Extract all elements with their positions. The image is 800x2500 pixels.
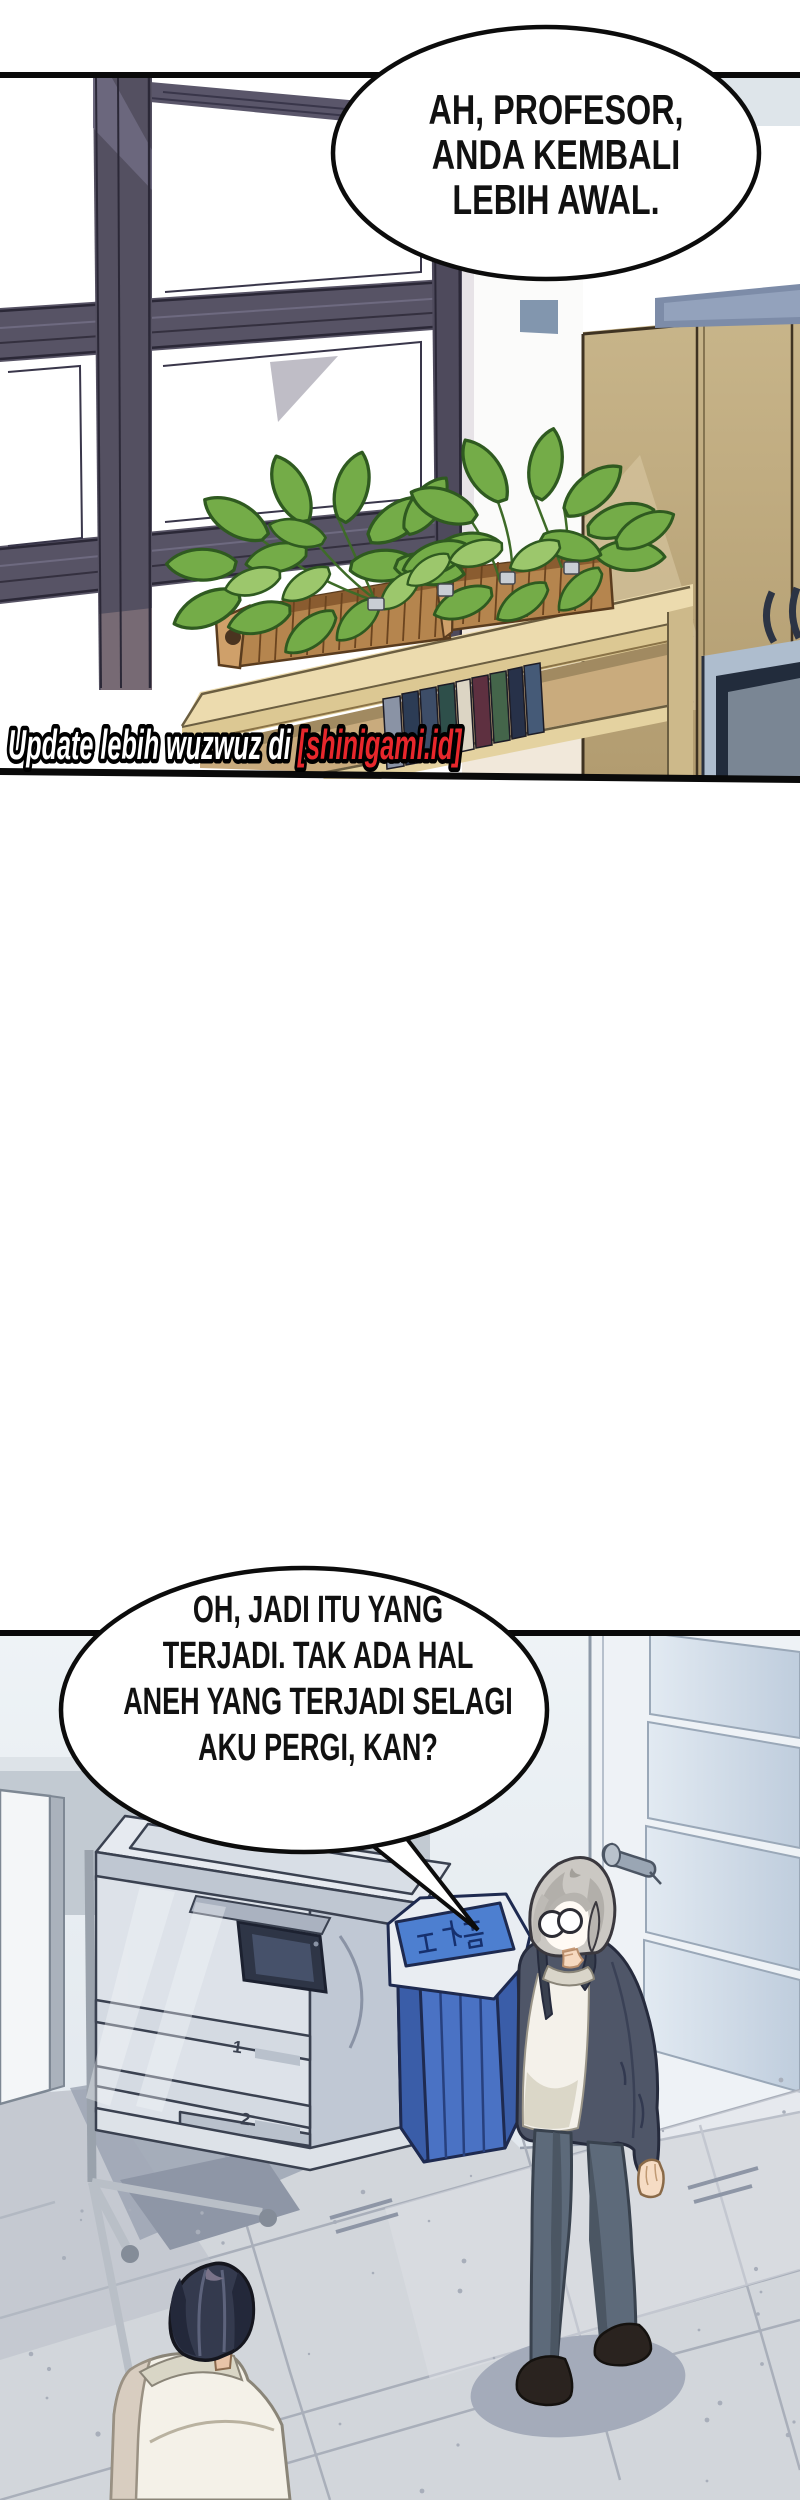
svg-text:OH, JADI ITU YANG: OH, JADI ITU YANG <box>193 1587 443 1630</box>
svg-text:TERJADI. TAK ADA HAL: TERJADI. TAK ADA HAL <box>163 1633 474 1676</box>
svg-text:AKU PERGI, KAN?: AKU PERGI, KAN? <box>198 1725 438 1768</box>
svg-text:LEBIH AWAL.: LEBIH AWAL. <box>452 176 659 223</box>
svg-text:ANDA KEMBALI: ANDA KEMBALI <box>432 131 680 178</box>
svg-text:ANEH YANG TERJADI SELAGI: ANEH YANG TERJADI SELAGI <box>123 1679 513 1722</box>
svg-text:AH, PROFESOR,: AH, PROFESOR, <box>428 86 683 133</box>
svg-text:Update lebih wuzwuz di [shinig: Update lebih wuzwuz di [shinigami.id] <box>8 723 463 769</box>
